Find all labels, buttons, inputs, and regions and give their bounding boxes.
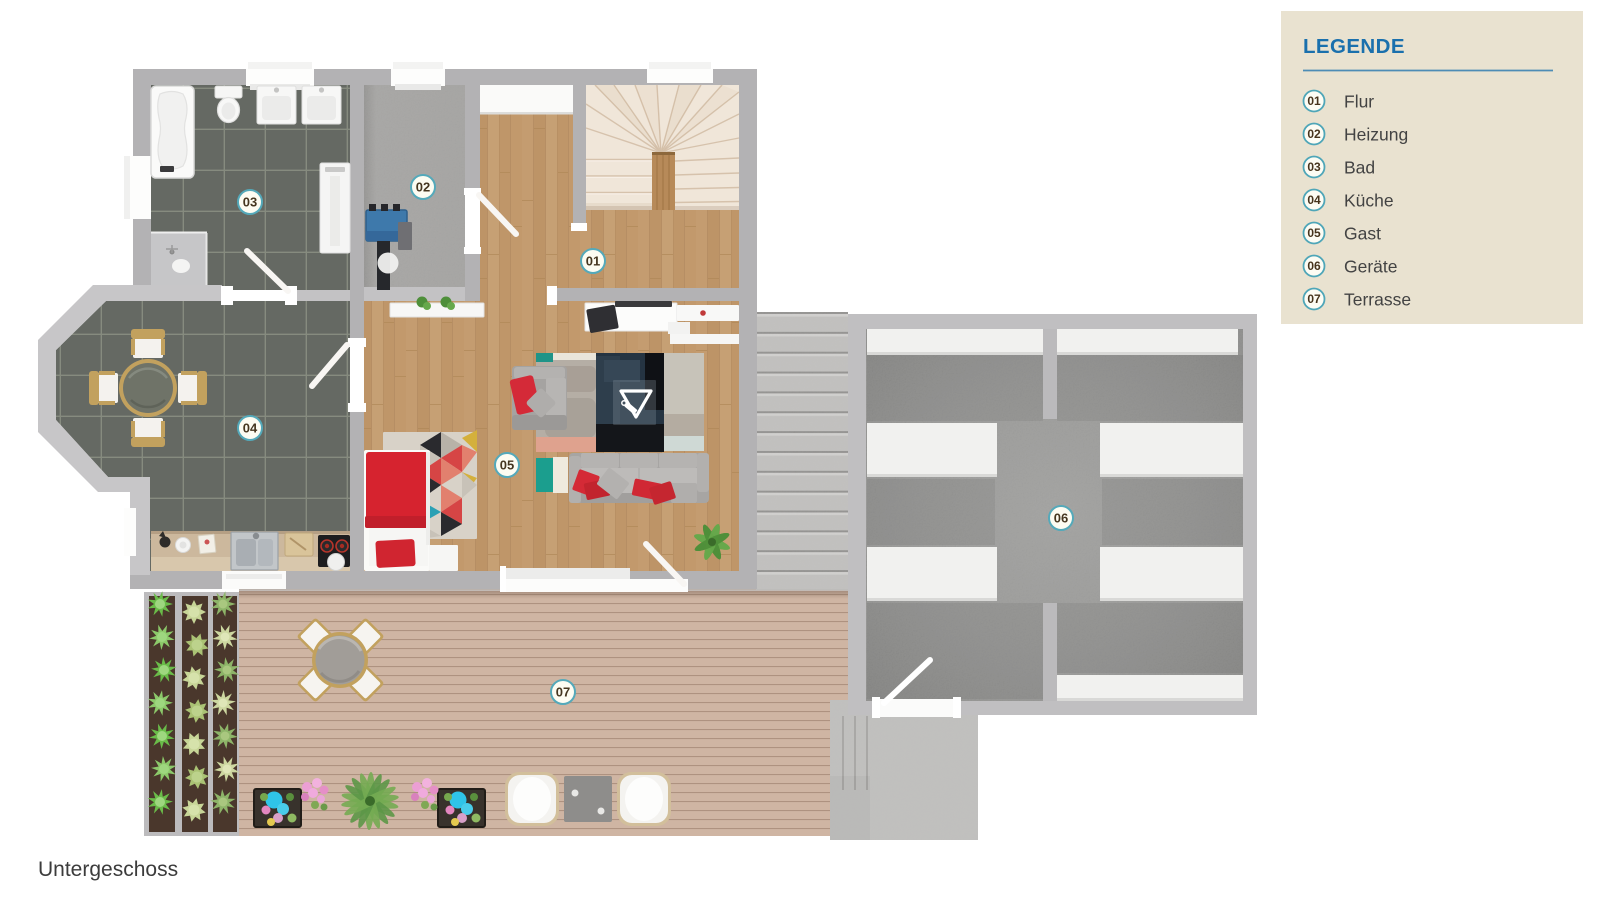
svg-text:07: 07 <box>556 685 570 700</box>
svg-text:Flur: Flur <box>1344 92 1374 112</box>
svg-text:02: 02 <box>416 180 430 195</box>
svg-text:Geräte: Geräte <box>1344 257 1398 277</box>
svg-text:Bad: Bad <box>1344 158 1375 178</box>
svg-text:05: 05 <box>500 458 514 473</box>
svg-text:06: 06 <box>1054 511 1068 526</box>
svg-text:04: 04 <box>243 421 258 436</box>
svg-text:01: 01 <box>1307 94 1321 108</box>
svg-text:Terrasse: Terrasse <box>1344 290 1411 310</box>
svg-text:07: 07 <box>1307 292 1321 306</box>
svg-text:04: 04 <box>1307 193 1321 207</box>
svg-text:Heizung: Heizung <box>1344 125 1408 145</box>
svg-text:02: 02 <box>1307 127 1321 141</box>
svg-text:01: 01 <box>586 254 600 269</box>
svg-text:Küche: Küche <box>1344 191 1394 211</box>
svg-text:06: 06 <box>1307 259 1321 273</box>
svg-text:Untergeschoss: Untergeschoss <box>38 858 178 881</box>
svg-text:05: 05 <box>1307 226 1321 240</box>
svg-text:03: 03 <box>243 195 257 210</box>
svg-text:Gast: Gast <box>1344 224 1381 244</box>
svg-text:LEGENDE: LEGENDE <box>1303 35 1405 58</box>
svg-text:03: 03 <box>1307 160 1321 174</box>
